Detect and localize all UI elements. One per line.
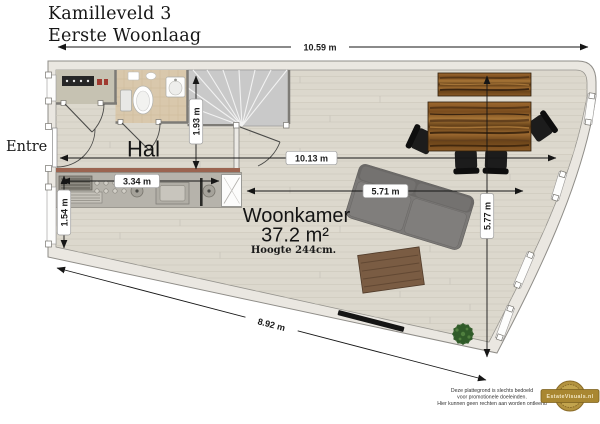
woonkamer-area-label: 37.2 m² <box>261 225 329 247</box>
hall-wall-stub <box>234 127 239 173</box>
kitchen-backsplash-wall <box>56 168 240 173</box>
dim-kitchen-depth-label: 1.54 m <box>59 198 69 226</box>
disclaimer-line-1: Deze plattegrond is slechts bedoeld <box>451 388 533 394</box>
window-left-upper <box>46 72 57 104</box>
kitchen-sink <box>156 183 189 205</box>
logo-text: EstateVisuals.nl <box>547 394 594 400</box>
coffee-table <box>358 247 425 293</box>
logo-badge: EstateVisuals.nl <box>541 381 599 411</box>
dim-sofa-span-label: 5.71 m <box>371 186 399 196</box>
stairs <box>188 70 289 126</box>
floorplan-svg: 10.59 m 10.13 m 5.71 m 5.77 m 1.93 m <box>0 0 600 424</box>
closet-floor <box>56 70 115 104</box>
dim-overall-width: 10.59 m <box>58 40 588 54</box>
room-toilet <box>116 70 189 123</box>
dim-living-width-label: 10.13 m <box>295 153 328 163</box>
burner-right <box>203 185 215 197</box>
fridge-cabinet <box>222 175 242 207</box>
window-left-lower <box>46 184 57 247</box>
hal-label: Hal <box>127 137 160 162</box>
room-closet <box>56 70 115 104</box>
chair-bottom-1 <box>453 150 480 175</box>
dim-kitchen-width-label: 3.34 m <box>123 176 151 186</box>
dining-table <box>428 102 531 151</box>
chair-bottom-2 <box>483 150 510 175</box>
toilet-wc <box>121 86 154 114</box>
toilet-sink <box>166 77 185 97</box>
dim-hal-depth-label: 1.93 m <box>191 107 201 135</box>
woonkamer-height-label: Hoogte 244cm. <box>251 245 336 256</box>
dim-overall-width-label: 10.59 m <box>303 42 336 52</box>
dining-bench <box>438 73 531 96</box>
disclaimer-line-3: Hier kunnen geen rechten aan worden ontl… <box>437 401 547 407</box>
dim-right-depth-label: 5.77 m <box>482 202 492 230</box>
counter-divider <box>200 178 203 206</box>
floorplan-page: Kamilleveld 3 Eerste Woonlaag Entree <box>0 0 600 424</box>
disclaimer-line-2: voor promotionele doeleinden. <box>457 395 527 401</box>
